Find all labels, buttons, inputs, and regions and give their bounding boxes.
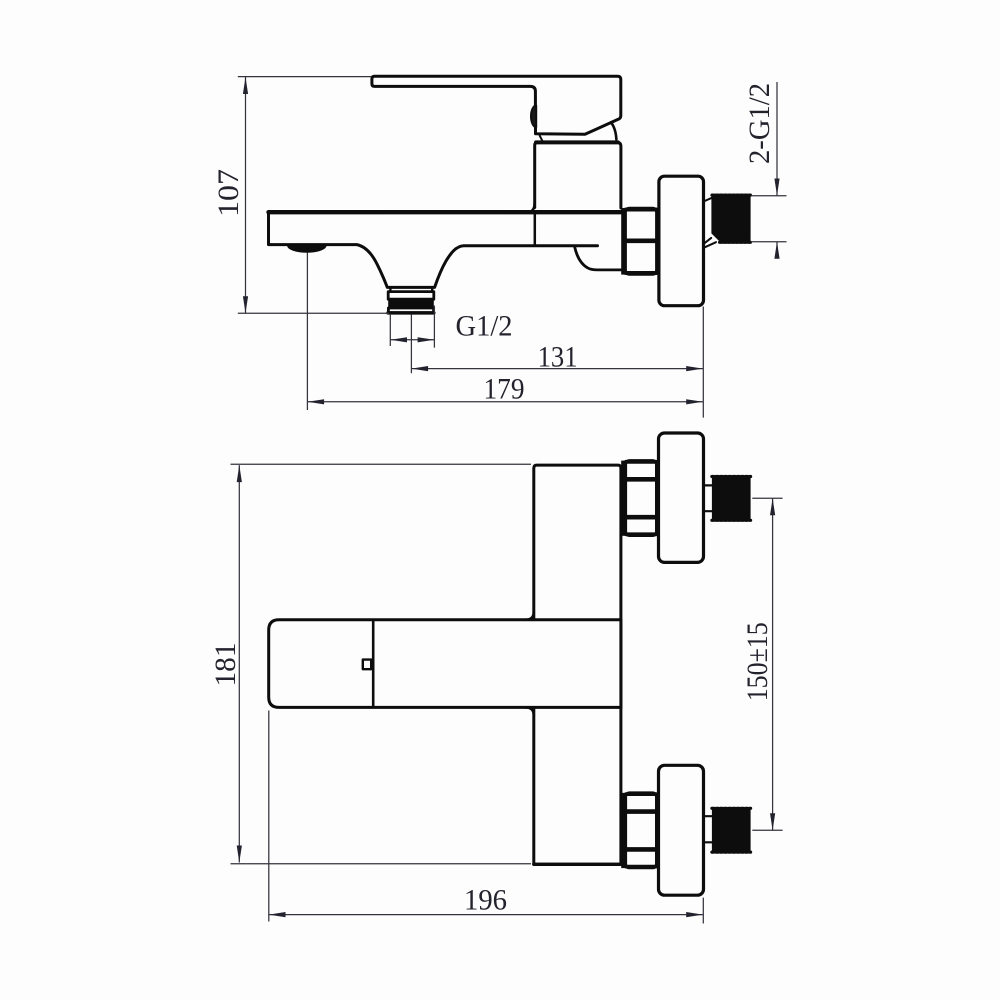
svg-text:179: 179 [484, 373, 525, 406]
svg-text:107: 107 [212, 169, 245, 217]
svg-text:196: 196 [464, 884, 507, 917]
svg-text:G1/2: G1/2 [456, 310, 513, 343]
svg-text:181: 181 [209, 643, 242, 687]
svg-text:2-G1/2: 2-G1/2 [743, 83, 776, 164]
svg-text:150±15: 150±15 [741, 622, 774, 701]
svg-text:131: 131 [538, 340, 578, 373]
